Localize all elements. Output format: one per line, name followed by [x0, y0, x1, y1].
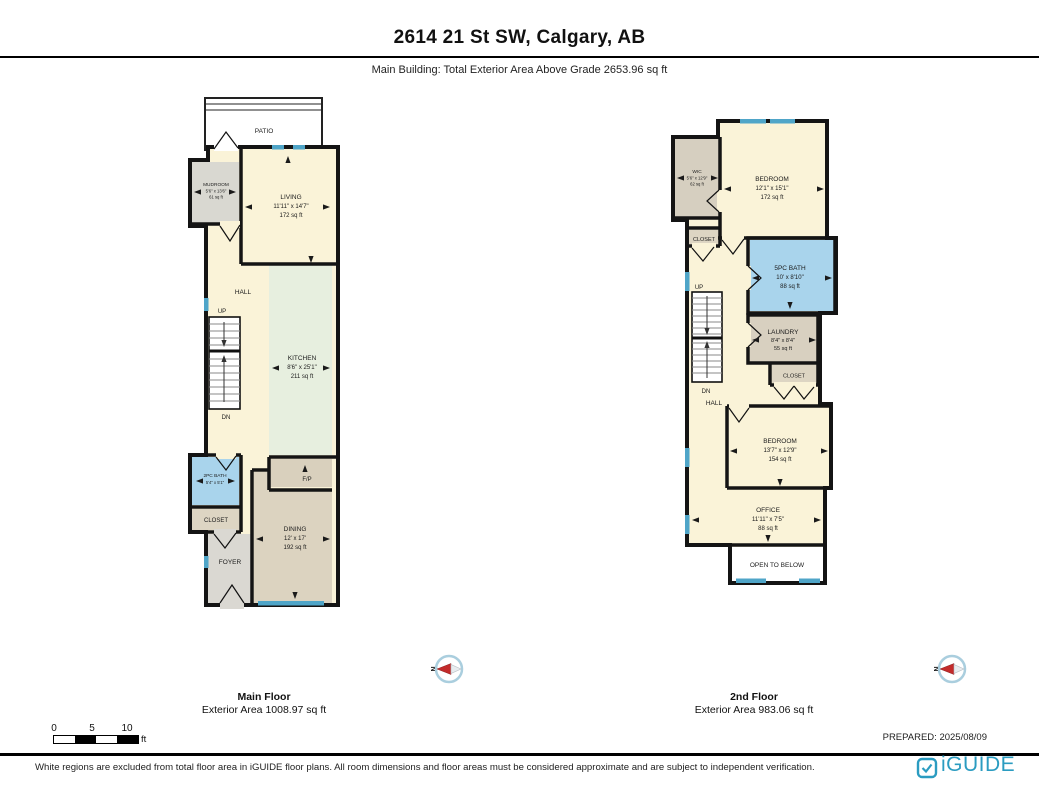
scale-tick-5: 5: [86, 723, 98, 734]
room-label-foyer: FOYER: [219, 559, 242, 566]
room-area-bedroom2: 154 sq ft: [768, 457, 791, 463]
stairs-dn-label-2: DN: [702, 389, 711, 395]
floor-plan-page: 2614 21 St SW, Calgary, AB Main Building…: [0, 0, 1039, 804]
room-dims-living: 11'11" x 14'7": [273, 204, 308, 210]
iguide-logo-icon: [916, 757, 938, 779]
second-floor-plan: WIC 5'6" x 12'9" 62 sq ft BEDROOM 12'1" …: [668, 115, 840, 590]
room-label-kitchen: KITCHEN: [288, 355, 317, 362]
compass-main: N: [426, 649, 472, 689]
room-label-dining: DINING: [284, 526, 307, 533]
room-label-laundry: LAUNDRY: [768, 329, 800, 336]
room-label-closet: CLOSET: [204, 518, 228, 524]
scale-tick-0: 0: [49, 723, 59, 734]
room-dims-bath: 5'4" x 5'1": [206, 480, 225, 485]
scale-unit: ft: [141, 734, 146, 745]
second-floor-caption: 2nd Floor Exterior Area 983.06 sq ft: [649, 691, 859, 717]
room-label-bedroom1: BEDROOM: [755, 176, 789, 183]
compass-second: N: [929, 649, 975, 689]
room-dims-laundry: 8'4" x 8'4": [771, 338, 795, 344]
page-subtitle: Main Building: Total Exterior Area Above…: [0, 64, 1039, 76]
room-area-office: 88 sq ft: [758, 526, 778, 532]
prepared-date: PREPARED: 2025/08/09: [795, 732, 987, 743]
room-label-closet1: CLOSET: [693, 237, 716, 243]
footer-divider: [0, 753, 1039, 756]
second-floor-name: 2nd Floor: [649, 691, 859, 704]
room-dims-dining: 12' x 17': [284, 536, 306, 542]
second-floor-stairs: [692, 292, 722, 382]
patio-deck: [205, 98, 322, 150]
room-dims-wic: 5'6" x 12'9": [687, 176, 708, 181]
main-floor-plan: PATIO MUDROOM 5'6" x 13'6" 61 sq ft LIVI…: [185, 95, 345, 610]
scale-tick-10: 10: [118, 723, 136, 734]
room-dims-bedroom2: 13'7" x 12'9": [764, 448, 797, 454]
title-divider: [0, 56, 1039, 58]
room-label-closet2: CLOSET: [783, 374, 806, 380]
room-label-living: LIVING: [280, 194, 301, 201]
stairs-up-label-2: UP: [695, 285, 703, 291]
room-label-office: OFFICE: [756, 507, 780, 514]
room-dims-bath5: 10' x 8'10": [776, 275, 803, 281]
room-dims-kitchen: 8'6" x 25'1": [287, 365, 317, 371]
room-area-laundry: 55 sq ft: [774, 346, 793, 352]
room-area-dining: 192 sq ft: [283, 545, 306, 551]
stairs-up-label: UP: [218, 309, 226, 315]
scale-bar: [53, 735, 139, 744]
room-label-hall: HALL: [235, 289, 252, 296]
room-label-bath5: 5PC BATH: [774, 265, 806, 272]
room-area-bath5: 88 sq ft: [780, 284, 800, 290]
room-area-living: 172 sq ft: [279, 213, 302, 219]
room-dims-mudroom: 5'6" x 13'6": [206, 189, 227, 194]
room-dims-office: 11'11" x 7'5": [752, 517, 784, 523]
room-label-hall-2: HALL: [706, 400, 723, 407]
footer-disclaimer: White regions are excluded from total fl…: [35, 762, 855, 773]
foyer-area: [208, 534, 252, 603]
room-label-open-below: OPEN TO BELOW: [750, 562, 805, 569]
iguide-logo-text: iGUIDE: [941, 753, 1015, 777]
room-label-mudroom: MUDROOM: [203, 182, 229, 188]
room-dims-bedroom1: 12'1" x 15'1": [756, 186, 789, 192]
main-floor-stairs: [209, 317, 240, 409]
main-floor-caption: Main Floor Exterior Area 1008.97 sq ft: [159, 691, 369, 717]
fireplace-area: [270, 459, 332, 487]
room-area-wic: 62 sq ft: [690, 182, 705, 187]
page-title: 2614 21 St SW, Calgary, AB: [0, 27, 1039, 49]
room-label-bath: 2PC BATH: [203, 473, 227, 479]
room-label-bedroom2: BEDROOM: [763, 438, 797, 445]
second-floor-area: Exterior Area 983.06 sq ft: [649, 704, 859, 717]
room-label-wic: WIC: [692, 169, 702, 175]
stairs-dn-label: DN: [222, 415, 231, 421]
main-floor-area: Exterior Area 1008.97 sq ft: [159, 704, 369, 717]
room-label-fireplace: F/P: [302, 477, 311, 483]
room-area-kitchen: 211 sq ft: [291, 374, 314, 380]
room-area-mudroom: 61 sq ft: [209, 195, 224, 200]
main-floor-name: Main Floor: [159, 691, 369, 704]
room-area-bedroom1: 172 sq ft: [760, 195, 783, 201]
room-label-patio: PATIO: [255, 128, 274, 135]
